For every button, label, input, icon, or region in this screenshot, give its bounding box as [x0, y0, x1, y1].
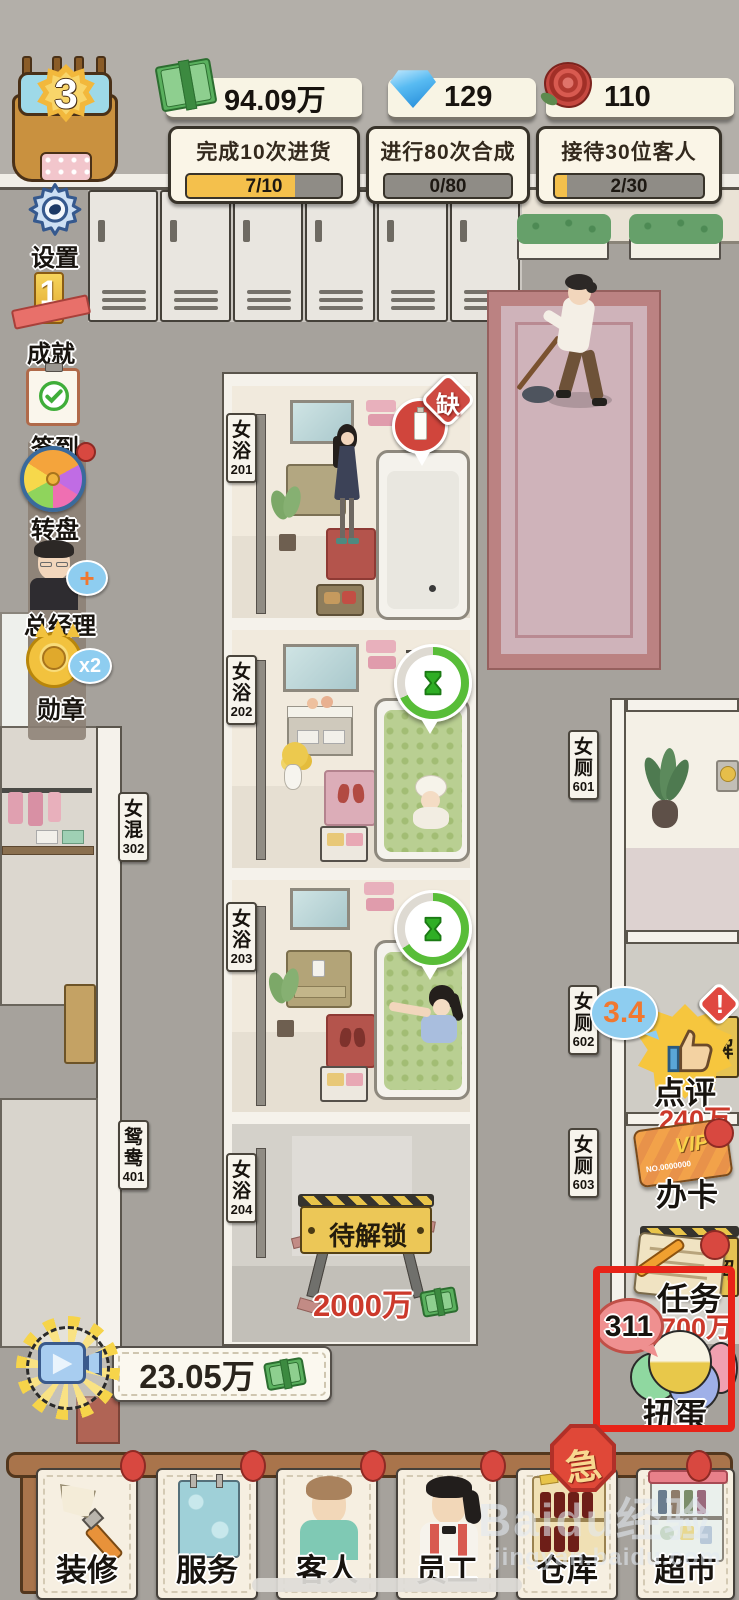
tutorial-highlight-box: [593, 1266, 735, 1432]
room-label-mixed-302: 女混302: [118, 792, 149, 862]
guest-standing: [330, 420, 374, 544]
cleaner-staff: [520, 272, 630, 422]
cash-icon: [265, 1360, 305, 1388]
notification-dot: [686, 1450, 712, 1482]
notification-dot: [120, 1450, 146, 1482]
cash-icon: [421, 1289, 457, 1315]
towel-cart: [320, 1066, 368, 1102]
notification-dot: [480, 1450, 506, 1482]
play-icon: [49, 1351, 75, 1377]
plant-bush: [517, 214, 611, 244]
plant-bush: [629, 214, 723, 244]
bather-towel: [421, 1015, 457, 1043]
towel: [364, 882, 394, 895]
room-label-toilet-603: 女厕603: [568, 1128, 599, 1198]
locker-row: [88, 190, 522, 322]
laundry-basket: [316, 584, 364, 616]
room-toilet-601[interactable]: [626, 712, 739, 930]
sidebar-item-wheel[interactable]: 转盘: [14, 446, 100, 542]
video-camera-icon: [38, 1342, 86, 1384]
door-rail: [256, 906, 266, 1106]
planter-box: [517, 238, 609, 260]
locked-room-price: 2000万: [296, 1282, 474, 1322]
notification-dot: [360, 1450, 386, 1482]
door-rail: [256, 414, 266, 614]
plant-pot: [652, 800, 678, 828]
paper-dispenser: [716, 760, 739, 792]
sidebar-item-settings[interactable]: 设置: [16, 180, 96, 270]
alert-badge: !: [697, 982, 739, 1028]
quest-merge[interactable]: 进行80次合成 0/80: [366, 126, 530, 204]
gear-icon: [24, 180, 86, 242]
reward-value: 23.05万: [139, 1350, 255, 1398]
notification-dot: [76, 442, 96, 462]
nav-item-service[interactable]: 服务: [156, 1468, 258, 1600]
room-label-bath-202: 女浴202: [226, 655, 257, 725]
clipboard-icon: [26, 368, 80, 426]
notification-dot: [704, 1118, 734, 1148]
rose-icon: [544, 62, 592, 108]
reward-pill[interactable]: 23.05万: [112, 1346, 332, 1402]
hourglass-icon: [418, 914, 448, 944]
towel: [366, 640, 396, 653]
check-icon: [38, 380, 70, 412]
notification-dot: [240, 1450, 266, 1482]
urgent-badge: 急: [550, 1424, 616, 1492]
sidebar-item-achievements[interactable]: 1 成就: [12, 272, 102, 368]
room-label-toilet-601: 女厕601: [568, 730, 599, 800]
hire-bubble: +: [66, 560, 108, 596]
vase: [284, 764, 302, 790]
sidebar-item-medals[interactable]: x2 勋章: [12, 628, 112, 724]
door-rail: [256, 660, 266, 860]
door-rail: [256, 1148, 266, 1258]
room-label-bath-204: 女浴204: [226, 1153, 257, 1223]
mirror: [290, 888, 350, 930]
plant-pot: [279, 534, 296, 551]
level-badge[interactable]: 3: [12, 56, 120, 188]
mirror: [283, 644, 359, 692]
mop-handle: [516, 335, 561, 390]
room-mixed-302[interactable]: [0, 726, 98, 1006]
room-label-couple-401: 鸳鸯401: [118, 1120, 149, 1190]
towel-cart: [320, 826, 368, 862]
room-label-bath-203: 女浴203: [226, 902, 257, 972]
level-number: 3: [36, 70, 96, 118]
planter-box: [629, 238, 721, 260]
medal-count-bubble: x2: [68, 648, 112, 684]
wooden-stand: [64, 984, 96, 1064]
plant-pot: [277, 1020, 294, 1037]
quest-progress-bar: 2/30: [553, 173, 705, 199]
cash-icon: [158, 62, 214, 108]
review-button[interactable]: ! 3.4 点评 240万: [590, 980, 739, 1130]
bath-mat: [326, 1014, 376, 1068]
towel-decor: [40, 152, 92, 182]
timer-bubble[interactable]: [394, 644, 472, 722]
timer-bubble[interactable]: [394, 890, 472, 968]
shortage-badge: 缺: [424, 376, 472, 424]
quest-progress-bar: 0/80: [383, 173, 513, 199]
quest-progress-bar: 7/10: [185, 173, 343, 199]
game-screen: 缺: [0, 0, 739, 1600]
hourglass-icon: [418, 668, 448, 698]
bathtub[interactable]: [376, 450, 470, 620]
home-indicator[interactable]: [252, 1578, 522, 1592]
ad-video-button[interactable]: [14, 1314, 124, 1424]
quest-restock[interactable]: 完成10次进货 7/10: [168, 126, 360, 204]
watermark-brand: Baidu经验: [478, 1484, 712, 1550]
watermark-url: jingyan.baidu.com: [494, 1544, 722, 1572]
notification-dot: [700, 1230, 730, 1260]
mop-head: [522, 386, 554, 403]
room-couple-401[interactable]: [0, 1098, 98, 1348]
quest-guests[interactable]: 接待30位客人 2/30: [536, 126, 722, 204]
nav-item-decorate[interactable]: 装修: [36, 1468, 138, 1600]
bath-mat: [324, 770, 376, 826]
vip-card-button[interactable]: VIP NO.0000000 办卡: [634, 1118, 739, 1206]
room-label-bath-201: 女浴201: [226, 413, 257, 483]
